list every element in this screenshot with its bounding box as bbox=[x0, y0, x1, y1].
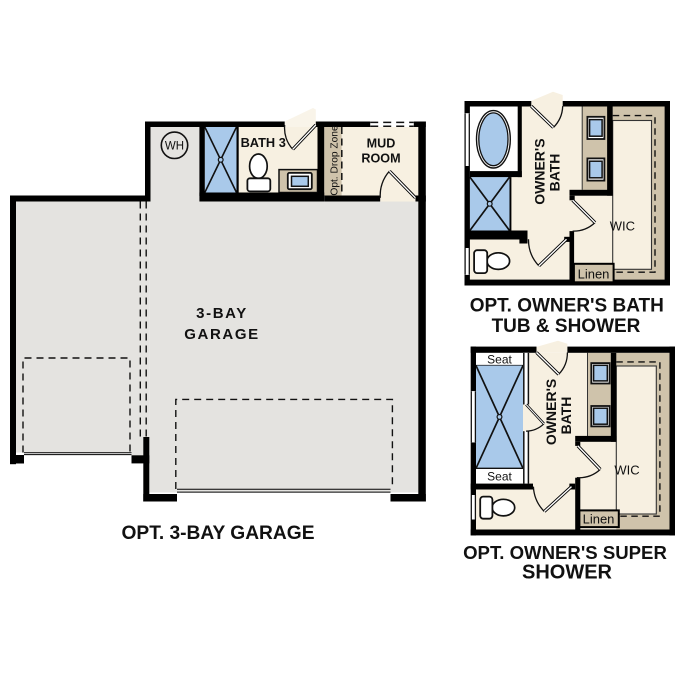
svg-text:OWNER'S: OWNER'S bbox=[543, 379, 559, 445]
svg-text:BATH: BATH bbox=[546, 154, 562, 192]
svg-text:OWNER'S: OWNER'S bbox=[532, 138, 548, 204]
svg-text:ROOM: ROOM bbox=[361, 152, 400, 166]
svg-text:Seat: Seat bbox=[487, 469, 512, 483]
svg-text:OPT. OWNER'S SUPER: OPT. OWNER'S SUPER bbox=[463, 542, 667, 563]
svg-text:MUD: MUD bbox=[367, 137, 396, 151]
svg-text:BATH 3: BATH 3 bbox=[241, 135, 286, 150]
svg-text:TUB & SHOWER: TUB & SHOWER bbox=[492, 316, 641, 337]
svg-text:BATH: BATH bbox=[558, 397, 574, 435]
svg-text:WIC: WIC bbox=[610, 219, 635, 234]
svg-text:Linen: Linen bbox=[578, 266, 610, 281]
svg-text:SHOWER: SHOWER bbox=[522, 562, 613, 584]
svg-text:OPT. OWNER'S BATH: OPT. OWNER'S BATH bbox=[470, 296, 664, 317]
svg-text:Linen: Linen bbox=[583, 512, 615, 527]
svg-text:Seat: Seat bbox=[487, 352, 512, 366]
svg-text:GARAGE: GARAGE bbox=[184, 326, 259, 343]
svg-text:Opt. Drop Zone: Opt. Drop Zone bbox=[330, 125, 341, 196]
svg-text:WH: WH bbox=[165, 141, 184, 153]
svg-text:WIC: WIC bbox=[614, 463, 639, 478]
svg-text:3-BAY: 3-BAY bbox=[196, 305, 248, 322]
svg-text:OPT. 3-BAY GARAGE: OPT. 3-BAY GARAGE bbox=[122, 523, 315, 544]
